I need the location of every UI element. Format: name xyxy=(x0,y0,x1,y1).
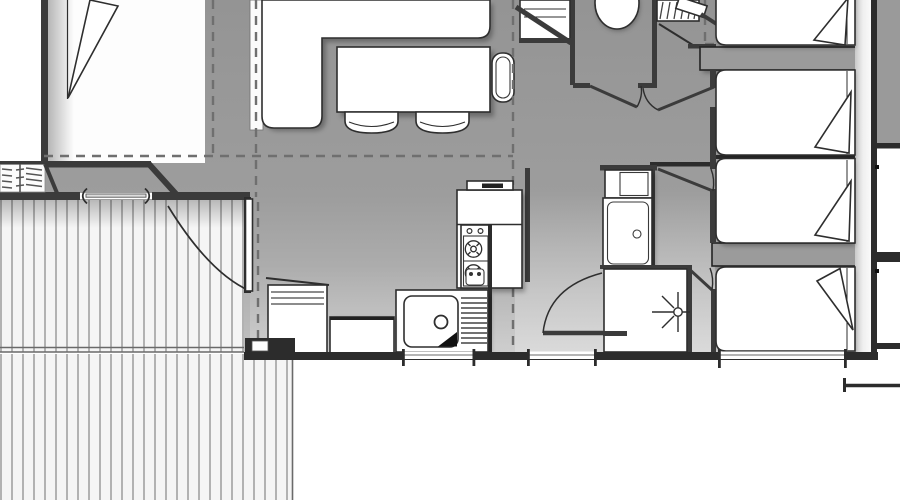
edge-tick xyxy=(843,378,846,392)
adjacent-wall xyxy=(873,252,900,262)
master-bedroom-shading xyxy=(48,0,74,163)
wall-bedrooms-1-2 xyxy=(700,47,857,70)
hood-vent xyxy=(482,184,503,189)
steps-top-edge xyxy=(0,161,45,165)
adjacent-wall xyxy=(873,343,900,349)
kitchen-cabinet-2 xyxy=(330,317,394,353)
single-bed-3 xyxy=(716,159,855,247)
wall-bedrooms-3-4 xyxy=(712,243,857,266)
wall-notch xyxy=(252,341,268,351)
single-bed-4 xyxy=(716,267,855,355)
hinge-dot xyxy=(875,165,879,169)
dining-chair-bottom-1 xyxy=(345,112,398,133)
master-bedroom xyxy=(48,0,205,163)
adjacent-wall xyxy=(873,143,900,149)
west-wall xyxy=(41,0,48,165)
hallway-wall xyxy=(650,162,712,167)
bedroom-west-wall xyxy=(710,189,716,243)
wc-south-wall xyxy=(573,83,590,88)
door-wall-stub xyxy=(603,331,627,336)
hinge-dot xyxy=(875,269,879,273)
bathtub-basin xyxy=(608,202,649,264)
deck-door-leaf xyxy=(246,199,253,291)
bedroom-west-wall xyxy=(710,70,716,88)
sliding-door-panel xyxy=(86,194,146,197)
bedroom-west-wall xyxy=(710,107,716,169)
bedroom-south-wall xyxy=(41,161,151,168)
east-exterior-wall xyxy=(871,0,877,356)
deck-boards-lower xyxy=(0,354,293,500)
dining-table xyxy=(337,47,490,112)
bathroom-west-wall xyxy=(525,168,530,282)
east-windows-strip xyxy=(855,0,871,356)
bathtub-drain xyxy=(633,230,641,238)
adjacent-room xyxy=(877,0,900,143)
dresser xyxy=(516,0,571,43)
dining-chair-right xyxy=(492,53,514,102)
floorplan-stage xyxy=(0,0,900,500)
deck-wall-shadow xyxy=(0,200,250,228)
floorplan-drawing xyxy=(0,0,900,500)
single-bed-1 xyxy=(716,0,855,48)
faucet xyxy=(466,269,484,285)
living-room xyxy=(262,0,514,133)
washbasin-bowl xyxy=(620,173,648,196)
single-bed-2 xyxy=(716,70,855,158)
burner xyxy=(465,241,481,257)
dining-chair-bottom-2 xyxy=(416,112,469,133)
